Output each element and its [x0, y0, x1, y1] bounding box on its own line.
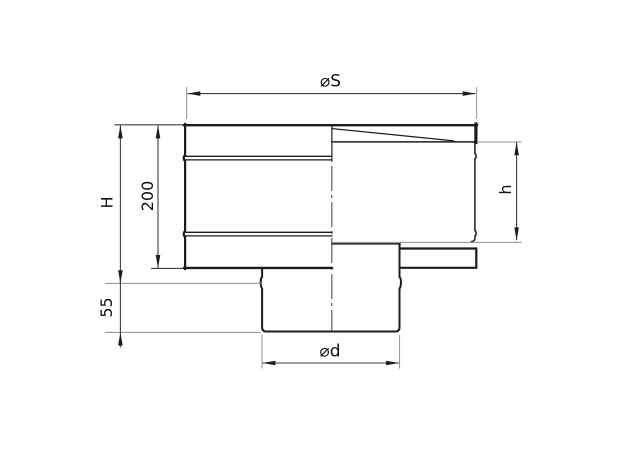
- arrow-phi-d-right: [386, 361, 399, 366]
- label-outlet-diameter: ⌀d: [319, 342, 340, 362]
- arrow-h-bottom: [514, 227, 519, 240]
- label-body-height: 200: [138, 181, 157, 212]
- dimension-labels: ⌀S ⌀d H 200 55 h: [97, 72, 515, 362]
- arrow-h-total-top: [118, 125, 123, 138]
- arrow-h-top: [514, 142, 519, 155]
- label-outer-diameter: ⌀S: [320, 72, 341, 92]
- outlet-pipe-outline: [261, 244, 401, 332]
- arrow-phi-s-right: [463, 91, 476, 96]
- label-outlet-height: 55: [97, 297, 116, 317]
- arrow-55-bottom: [118, 333, 123, 346]
- part-outlines: [184, 124, 477, 332]
- arrow-h-total-bottom: [118, 270, 123, 283]
- dimension-lines: [115, 94, 517, 363]
- dimension-arrows: [118, 91, 519, 365]
- label-total-height: H: [98, 196, 117, 208]
- technical-drawing: ⌀S ⌀d H 200 55 h: [0, 0, 624, 460]
- seam-diagonal: [332, 129, 454, 141]
- right-stub-outline: [400, 249, 477, 268]
- arrow-200-top: [156, 125, 161, 138]
- extension-lines: [105, 87, 522, 369]
- body-right-edge: [472, 142, 476, 242]
- label-cone-height: h: [496, 184, 515, 194]
- arrow-200-bottom: [156, 255, 161, 268]
- body-left-edge: [184, 124, 185, 269]
- arrow-phi-s-left: [187, 91, 200, 96]
- drawing-canvas: ⌀S ⌀d H 200 55 h: [0, 0, 624, 460]
- arrow-phi-d-left: [262, 361, 275, 366]
